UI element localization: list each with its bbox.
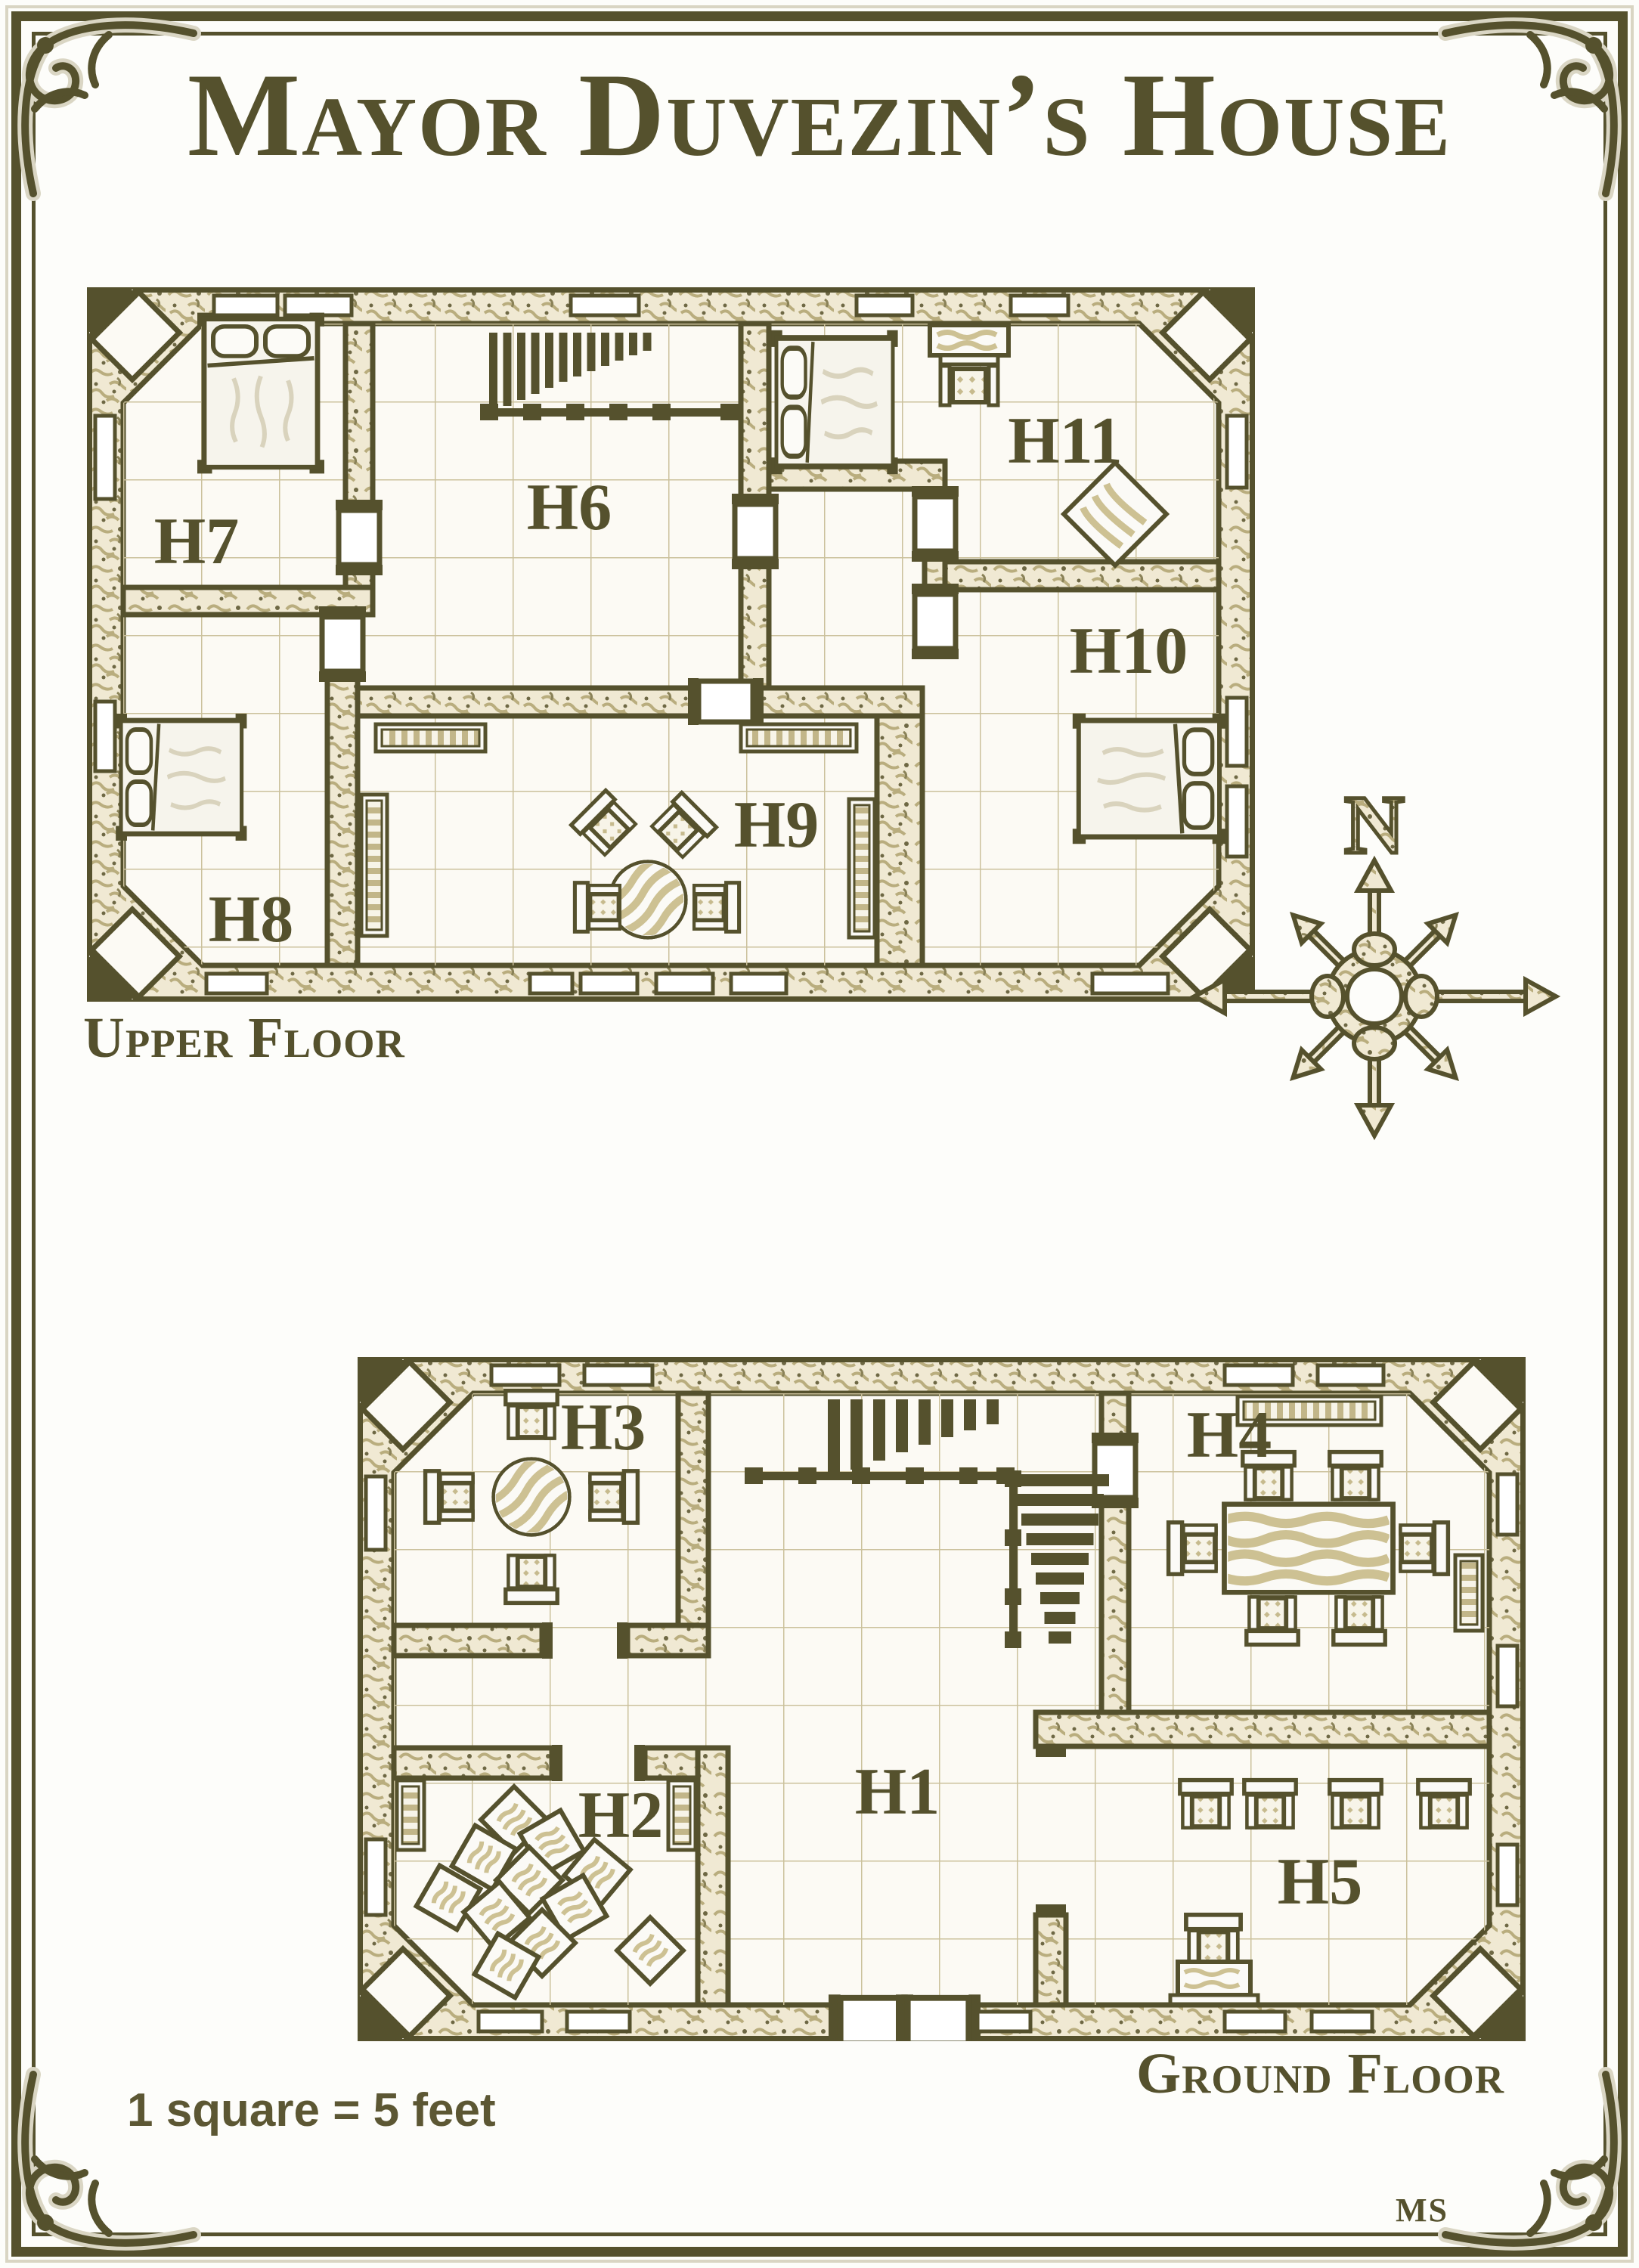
ground-floor-plan: H1 H2 H3 H4 H5 [358, 1357, 1526, 2041]
room-label-h3: H3 [561, 1391, 646, 1464]
artist-monogram: MS [1396, 2191, 1448, 2229]
room-label-h8: H8 [209, 883, 293, 956]
room-label-h2: H2 [578, 1779, 663, 1852]
battle-map-page: Mayor Duvezin’s House Upper Floor Ground… [0, 0, 1639, 2268]
map-scale-note: 1 square = 5 feet [127, 2084, 496, 2137]
upper-floor-label: Upper Floor [83, 1005, 405, 1071]
room-label-h7: H7 [154, 505, 239, 578]
page-title: Mayor Duvezin’s House [0, 47, 1639, 184]
room-label-h4: H4 [1187, 1399, 1272, 1472]
room-label-h1: H1 [855, 1755, 940, 1829]
bed-icon [197, 313, 324, 474]
room-label-h11: H11 [1008, 404, 1123, 478]
room-label-h5: H5 [1278, 1845, 1362, 1919]
room-label-h9: H9 [734, 789, 819, 862]
bed-icon [771, 330, 897, 474]
room-label-h6: H6 [527, 471, 612, 544]
entrance-door [896, 1994, 981, 2041]
ground-floor-label: Ground Floor [832, 2041, 1504, 2107]
dresser-icon [930, 325, 1008, 405]
compass-rose-icon: N [1179, 771, 1572, 1164]
upper-floor-plan: H7 H6 H8 H9 H10 H11 [87, 287, 1255, 1002]
room-label-h10: H10 [1070, 615, 1188, 688]
shelf-icon [1455, 1555, 1483, 1631]
bed-icon [116, 714, 246, 841]
dining-table-icon [1224, 1504, 1393, 1593]
